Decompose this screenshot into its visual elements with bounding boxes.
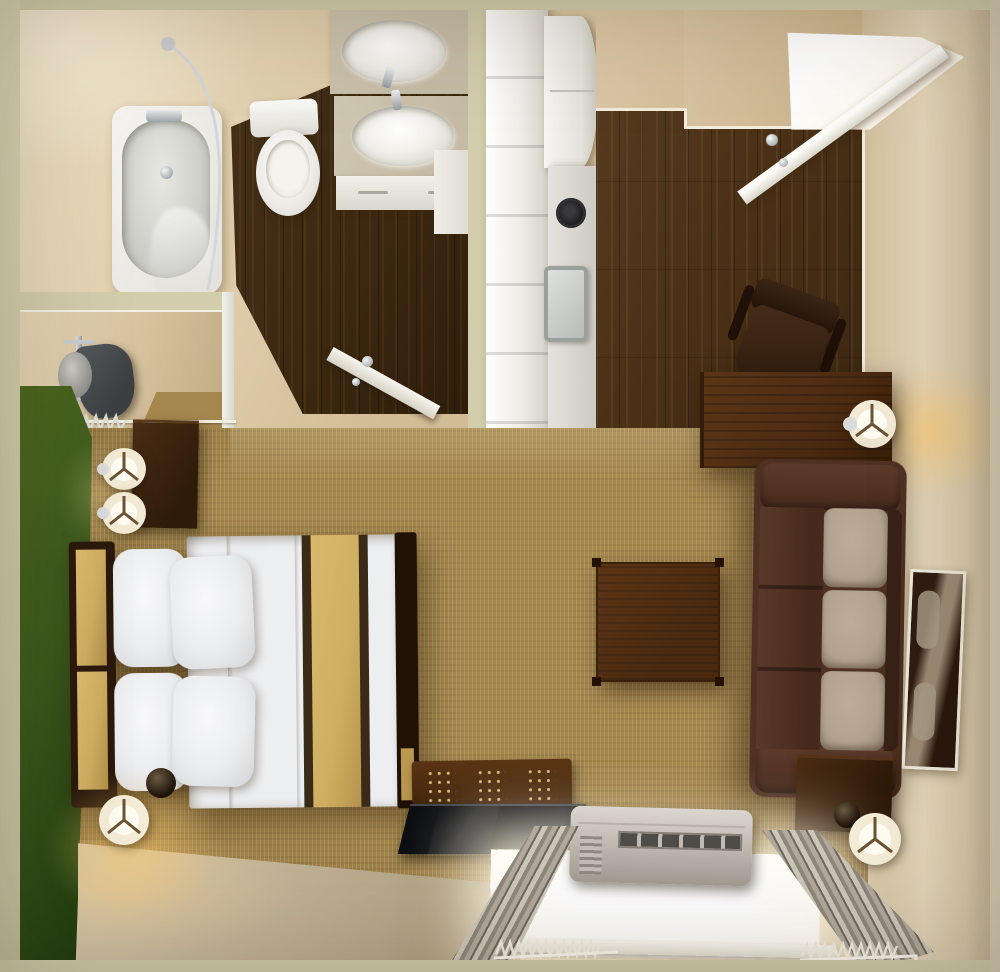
duvet-fold xyxy=(295,535,302,807)
sofa-cushions xyxy=(820,508,888,751)
ironing-board-bracket xyxy=(64,340,94,344)
sofa xyxy=(749,459,907,800)
ac-grille xyxy=(618,831,742,851)
toilet xyxy=(256,130,320,216)
kitchen-sink xyxy=(544,266,588,342)
closet-wall xyxy=(0,292,232,312)
outer-wall-top xyxy=(0,0,1000,10)
table-foot xyxy=(592,558,601,567)
table-foot xyxy=(592,677,601,686)
floor-plan-render xyxy=(0,0,1000,972)
table-foot xyxy=(715,558,724,567)
mirror-reflection xyxy=(916,590,941,649)
mirror-reflection xyxy=(912,682,937,741)
vanity-counter-upper xyxy=(330,10,482,94)
floor-lamp xyxy=(846,810,904,868)
floor-lamp xyxy=(96,792,152,848)
bench-studs xyxy=(426,769,457,808)
bedside-lamp xyxy=(96,490,148,536)
duvet-stripe xyxy=(359,535,371,807)
door-knob-icon xyxy=(779,158,788,167)
baseboard xyxy=(596,108,686,111)
seat-cushion xyxy=(821,590,886,670)
duvet-gold-runner xyxy=(311,535,362,807)
bench-studs xyxy=(476,768,507,807)
ac-seam xyxy=(579,822,745,828)
kitchen-counter xyxy=(548,166,602,438)
seat-cushion xyxy=(820,671,885,751)
coffee-table xyxy=(596,562,720,682)
kitchen-wall xyxy=(468,10,488,432)
headboard-panel xyxy=(76,549,107,665)
sofa-backrest xyxy=(756,507,824,750)
table-foot xyxy=(715,677,724,686)
wall-mirror xyxy=(902,569,967,771)
outer-wall-bottom xyxy=(0,960,1000,972)
stove-burner-icon xyxy=(556,198,586,228)
baseboard xyxy=(684,108,687,129)
pillow xyxy=(171,675,256,787)
closet-wall-edge xyxy=(222,292,234,432)
refrigerator-seam xyxy=(550,90,594,92)
ac-vents xyxy=(579,836,602,875)
baseboard xyxy=(684,126,792,129)
tv-gloss xyxy=(427,806,499,856)
bedside-lamp xyxy=(96,446,148,492)
outer-wall-right xyxy=(990,0,1000,972)
door-knob-icon xyxy=(362,356,373,367)
pillow xyxy=(169,555,256,671)
curtain-hooks-icon xyxy=(492,928,622,962)
headboard-panel xyxy=(77,671,108,789)
refrigerator xyxy=(544,16,598,168)
kitchen-cabinets xyxy=(486,10,548,434)
bench-studs xyxy=(526,767,557,806)
door-knob-icon xyxy=(766,134,778,146)
desk-lamp xyxy=(842,396,898,452)
door-knob-icon xyxy=(352,378,360,386)
cabinet-handle xyxy=(358,191,388,194)
outer-wall-left xyxy=(0,0,20,972)
sofa-armrest xyxy=(760,463,901,511)
seat-cushion xyxy=(823,508,888,588)
bed xyxy=(69,532,420,812)
toilet-seat xyxy=(266,140,310,198)
air-conditioner xyxy=(569,806,753,887)
